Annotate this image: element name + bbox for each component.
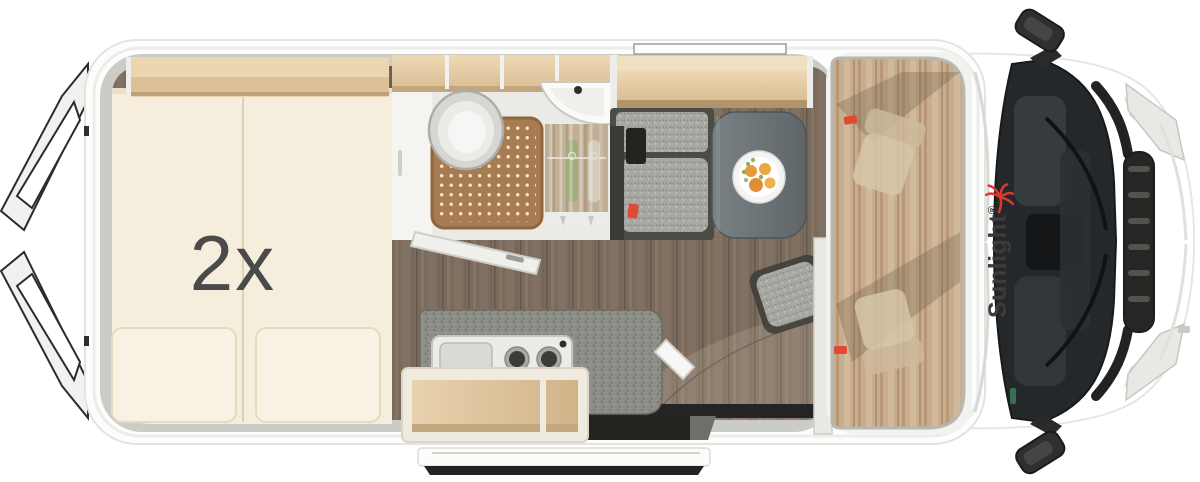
bench-seat-cushion bbox=[622, 158, 708, 232]
door-hinge bbox=[84, 336, 89, 346]
front-grille bbox=[1124, 152, 1154, 332]
dashboard-reflection bbox=[1014, 96, 1066, 206]
dinette-table bbox=[712, 112, 806, 238]
door-hinge bbox=[84, 126, 89, 136]
roof-window bbox=[634, 44, 786, 54]
overhead-cabinet-dinette bbox=[611, 56, 813, 108]
faucet-icon bbox=[574, 86, 582, 94]
fruit-plate bbox=[733, 151, 785, 203]
seat-belt-buckle bbox=[834, 346, 847, 354]
cab-overhead-panel bbox=[826, 52, 972, 434]
wardrobe bbox=[545, 124, 608, 226]
floorplan-canvas: 2x bbox=[0, 0, 1200, 482]
toilet bbox=[429, 91, 503, 169]
brand-text: Sunlight® bbox=[984, 205, 1012, 318]
pillow-left bbox=[112, 328, 236, 422]
campervan-floorplan: 2x bbox=[0, 0, 1200, 482]
bathroom-wall-handle bbox=[398, 150, 402, 176]
wardrobe-shelf bbox=[545, 212, 608, 226]
travel-bench bbox=[610, 108, 714, 240]
seat-belt-buckle bbox=[627, 203, 639, 218]
pillow-right bbox=[256, 328, 380, 422]
bed-quantity-label: 2x bbox=[190, 219, 276, 307]
dashboard-reflection bbox=[1014, 276, 1066, 386]
bumper-tab bbox=[1178, 326, 1190, 333]
sliding-door bbox=[418, 448, 710, 475]
overbed-shelf bbox=[126, 57, 389, 97]
windshield-sticker bbox=[1010, 388, 1016, 404]
kitchen-shelf bbox=[402, 368, 588, 442]
seat-belt-hardware bbox=[626, 128, 646, 164]
double-bed: 2x bbox=[112, 88, 392, 424]
windshield bbox=[994, 60, 1116, 422]
stove-knob bbox=[560, 341, 567, 348]
